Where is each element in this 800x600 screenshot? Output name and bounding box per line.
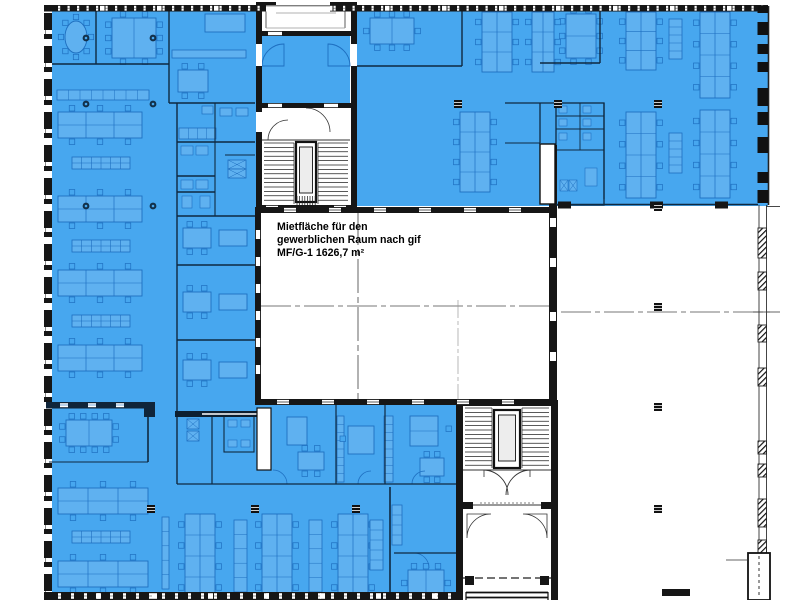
svg-text:gewerblichen Raum nach gif: gewerblichen Raum nach gif	[277, 234, 421, 246]
svg-text:MF/G-1 1626,7 m²: MF/G-1 1626,7 m²	[277, 247, 365, 259]
svg-text:Mietfläche für den: Mietfläche für den	[277, 221, 368, 233]
